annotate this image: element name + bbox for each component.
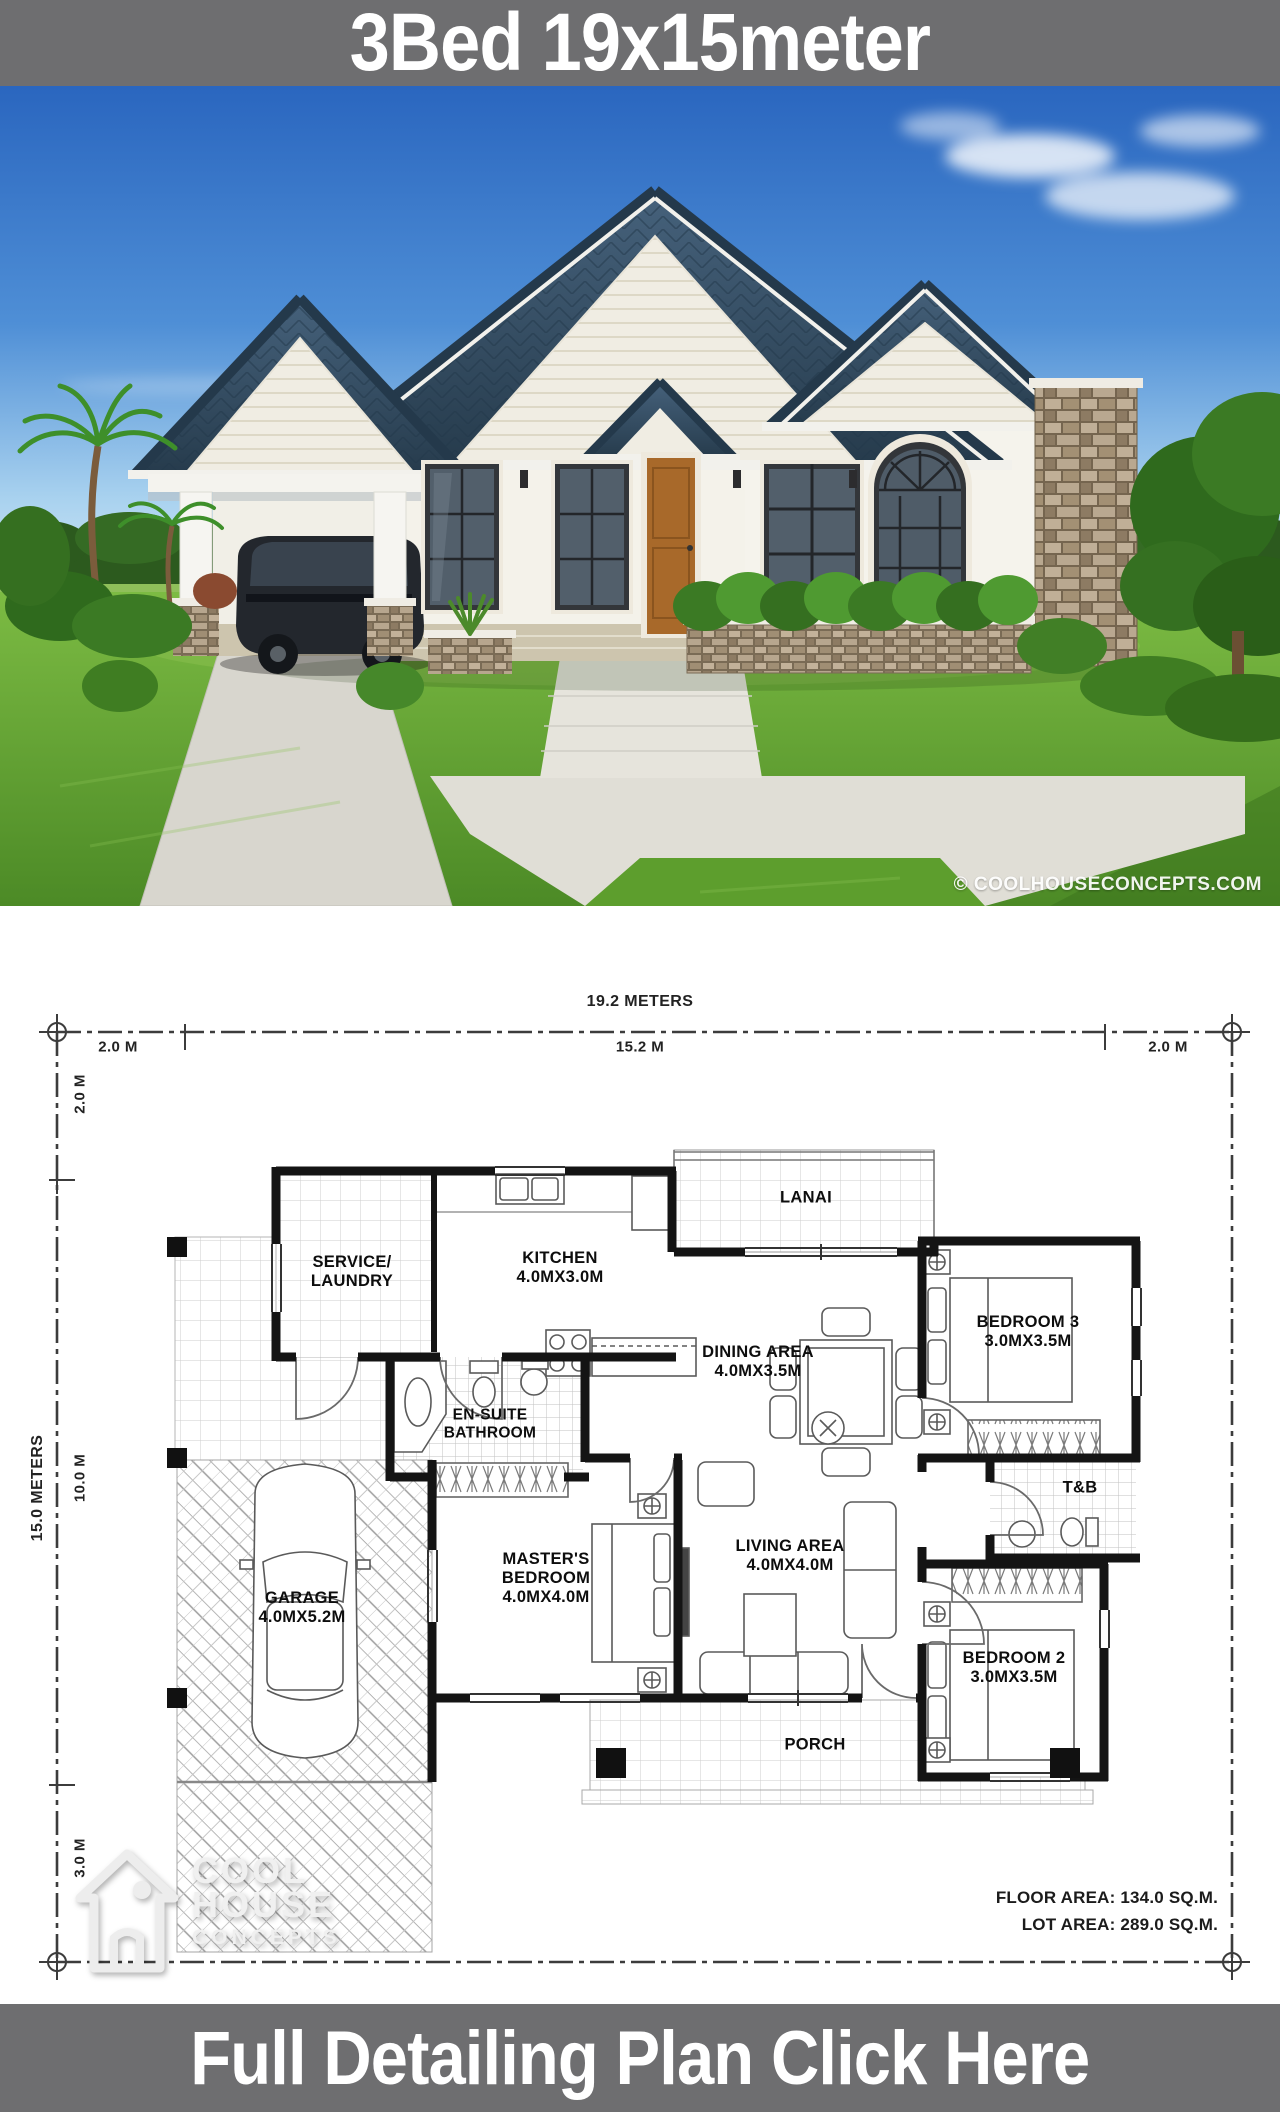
bed3-closet [968,1420,1100,1456]
area-summary: FLOOR AREA: 134.0 SQ.M. LOT AREA: 289.0 … [996,1884,1218,1938]
dim-side-top: 2.0 M [72,1074,89,1114]
room-label-dining: DINING AREA4.0MX3.5M [702,1343,814,1381]
logo-line1: COOL [192,1854,341,1888]
pinterest-house-plan-image: 3Bed 19x15meter [0,0,1280,2112]
bed2-closet [952,1568,1082,1602]
coolhouseconcepts-logo: COOL HOUSE CONCEPTS [72,1846,341,1976]
room-label-bedroom2: BEDROOM 23.0MX3.5M [963,1649,1066,1687]
floor-area-text: FLOOR AREA: 134.0 SQ.M. [996,1884,1218,1911]
room-label-bedroom3: BEDROOM 33.0MX3.5M [977,1313,1080,1351]
dim-side-mid: 10.0 M [72,1454,89,1502]
room-label-service-laundry: SERVICE/LAUNDRY [311,1253,393,1291]
room-label-porch: PORCH [784,1736,845,1755]
room-label-living: LIVING AREA4.0MX4.0M [735,1537,844,1575]
logo-line3: CONCEPTS [192,1928,341,1948]
dining-table-symbol [770,1308,922,1476]
full-plan-cta-label: Full Detailing Plan Click Here [190,2015,1089,2102]
dim-top-right: 2.0 M [1148,1039,1188,1056]
room-label-ensuite: EN-SUITEBATHROOM [444,1406,537,1441]
floor-plan-svg [0,0,1280,2112]
room-label-master: MASTER'SBEDROOM4.0MX4.0M [502,1550,590,1606]
room-label-tb: T&B [1063,1479,1098,1498]
logo-line2: HOUSE [192,1888,341,1922]
tb-floor [990,1462,1136,1558]
dim-top-mid: 15.2 M [616,1039,664,1056]
room-label-kitchen: KITCHEN4.0MX3.0M [516,1249,603,1287]
lot-area-text: LOT AREA: 289.0 SQ.M. [996,1911,1218,1938]
room-label-lanai: LANAI [780,1189,832,1208]
master-bed-symbol [592,1494,676,1692]
dim-top-left: 2.0 M [98,1039,138,1056]
full-plan-cta-banner[interactable]: Full Detailing Plan Click Here [0,2004,1280,2112]
master-closet [436,1463,568,1497]
dim-side-total: 15.0 METERS [29,1435,47,1542]
house-logo-icon [72,1846,182,1976]
room-label-garage: GARAGE4.0MX5.2M [258,1589,345,1627]
dim-top-total: 19.2 METERS [587,993,694,1011]
